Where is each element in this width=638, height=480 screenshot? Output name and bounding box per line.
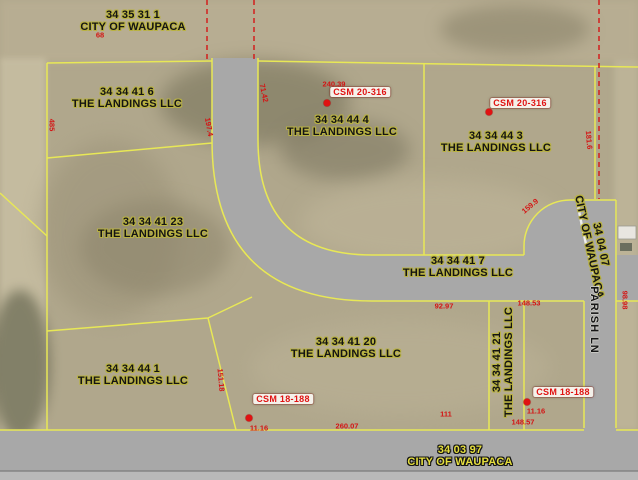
- dimension-label: 111: [440, 410, 452, 419]
- csm-point-marker: [246, 415, 253, 422]
- parcel-label: 34 34 41 23THE LANDINGS LLC: [98, 217, 208, 241]
- parcel-owner: THE LANDINGS LLC: [504, 307, 516, 417]
- parcel-owner: THE LANDINGS LLC: [291, 349, 401, 361]
- parcel-label: 34 34 41 21THE LANDINGS LLC: [492, 307, 516, 417]
- parcel-label: 34 04 07CITY OF WAUPACA: [571, 192, 616, 300]
- dimension-label: 92.97: [435, 302, 454, 311]
- label-layer: 34 35 31 1CITY OF WAUPACA34 34 41 6THE L…: [0, 0, 638, 480]
- csm-survey-label: CSM 20-316: [330, 87, 390, 97]
- dimension-label: 260.07: [336, 422, 359, 431]
- dimension-label: 98.98: [621, 291, 630, 310]
- parcel-owner: THE LANDINGS LLC: [441, 143, 551, 155]
- csm-point-marker: [524, 399, 531, 406]
- parcel-label: 34 34 41 7THE LANDINGS LLC: [403, 256, 513, 280]
- dimension-label: 151.18: [216, 368, 227, 392]
- parcel-owner: THE LANDINGS LLC: [403, 268, 513, 280]
- dimension-label: 197.4: [203, 117, 215, 137]
- csm-point-marker: [324, 100, 331, 107]
- dimension-label: 148.57: [512, 418, 535, 427]
- parcel-owner: CITY OF WAUPACA: [407, 457, 512, 469]
- parcel-owner: THE LANDINGS LLC: [287, 127, 397, 139]
- csm-survey-label: CSM 18-188: [533, 387, 593, 397]
- road-name-label: PARISH LN: [588, 286, 600, 353]
- parcel-label: 34 34 44 1THE LANDINGS LLC: [78, 364, 188, 388]
- csm-point-marker: [486, 109, 493, 116]
- csm-survey-label: CSM 18-188: [253, 394, 313, 404]
- dimension-label: 11.16: [527, 407, 545, 416]
- parcel-label: 34 34 41 6THE LANDINGS LLC: [72, 87, 182, 111]
- dimension-label: 71.42: [258, 83, 271, 103]
- parcel-map-viewport[interactable]: 34 35 31 1CITY OF WAUPACA34 34 41 6THE L…: [0, 0, 638, 480]
- dimension-label: 240.39: [323, 80, 346, 89]
- parcel-owner: THE LANDINGS LLC: [78, 376, 188, 388]
- dimension-label: 148.53: [518, 299, 541, 308]
- parcel-owner: THE LANDINGS LLC: [72, 99, 182, 111]
- dimension-label: 485: [48, 119, 57, 132]
- parcel-label: 34 34 44 3THE LANDINGS LLC: [441, 131, 551, 155]
- csm-survey-label: CSM 20-316: [490, 98, 550, 108]
- parcel-owner: THE LANDINGS LLC: [98, 229, 208, 241]
- dimension-label: 68: [96, 31, 104, 40]
- dimension-label: 181.6: [584, 130, 595, 149]
- parcel-label: 34 34 44 4THE LANDINGS LLC: [287, 115, 397, 139]
- parcel-label: 34 03 97CITY OF WAUPACA: [407, 445, 512, 469]
- dimension-label: 11.16: [250, 424, 268, 433]
- dimension-label: 159.9: [520, 197, 540, 216]
- parcel-label: 34 34 41 20THE LANDINGS LLC: [291, 337, 401, 361]
